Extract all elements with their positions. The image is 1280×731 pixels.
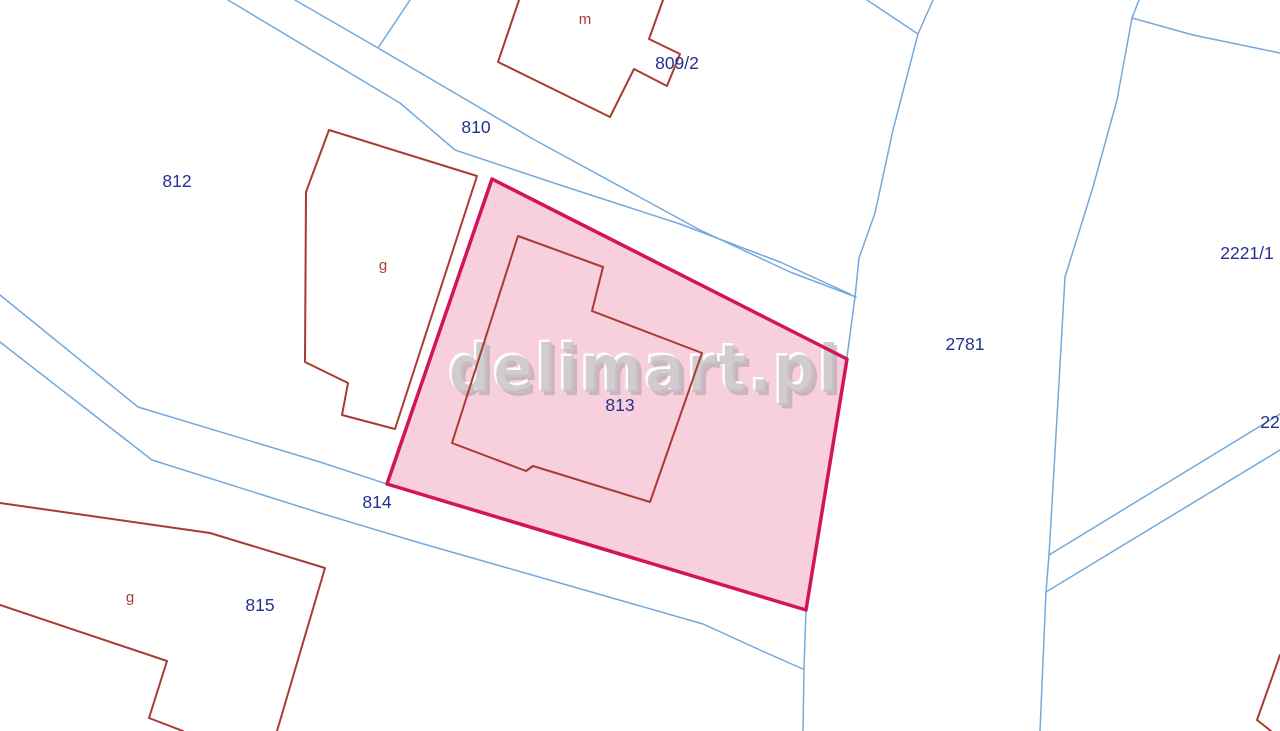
southeast-diagonal-upper xyxy=(1049,414,1280,555)
building-label-g-1: g xyxy=(379,257,387,274)
building-corner-bottom-right xyxy=(1257,655,1280,731)
watermark-text: delimart.pl xyxy=(449,331,841,408)
parcel-2781-east-boundary xyxy=(1040,0,1139,731)
parcel-label-813: 813 xyxy=(605,395,634,415)
building-label-m-0: m xyxy=(579,11,592,28)
parcel-label-815: 815 xyxy=(245,595,274,615)
parcel-label-812: 812 xyxy=(162,171,191,191)
southeast-diagonal-lower xyxy=(1046,450,1280,592)
map-svg: hdelimart.pldelimart.pldelimart.pl812810… xyxy=(0,0,1280,731)
cadastral-map-canvas[interactable]: hdelimart.pldelimart.pldelimart.pl812810… xyxy=(0,0,1280,731)
top-fork-branch xyxy=(867,0,918,34)
parcel-label-809-2: 809/2 xyxy=(655,53,699,73)
northeast-branch xyxy=(1132,18,1280,53)
building-g-815-outline-annex xyxy=(0,605,183,731)
parcel-label-814: 814 xyxy=(362,492,391,512)
parcel-label-2781: 2781 xyxy=(946,334,985,354)
road-810-top-branch xyxy=(378,0,410,48)
parcel-label-2221-1: 2221/1 xyxy=(1220,243,1274,263)
parcel-2781-west-boundary xyxy=(847,0,933,357)
parcel-label-810: 810 xyxy=(461,117,490,137)
parcel-label-22: 22 xyxy=(1260,412,1279,432)
building-label-g-2: g xyxy=(126,589,134,606)
boundary-below-parcel-813 xyxy=(803,610,806,731)
building-g-815-outline-main xyxy=(0,503,325,731)
road-814-upper-edge xyxy=(0,295,387,484)
